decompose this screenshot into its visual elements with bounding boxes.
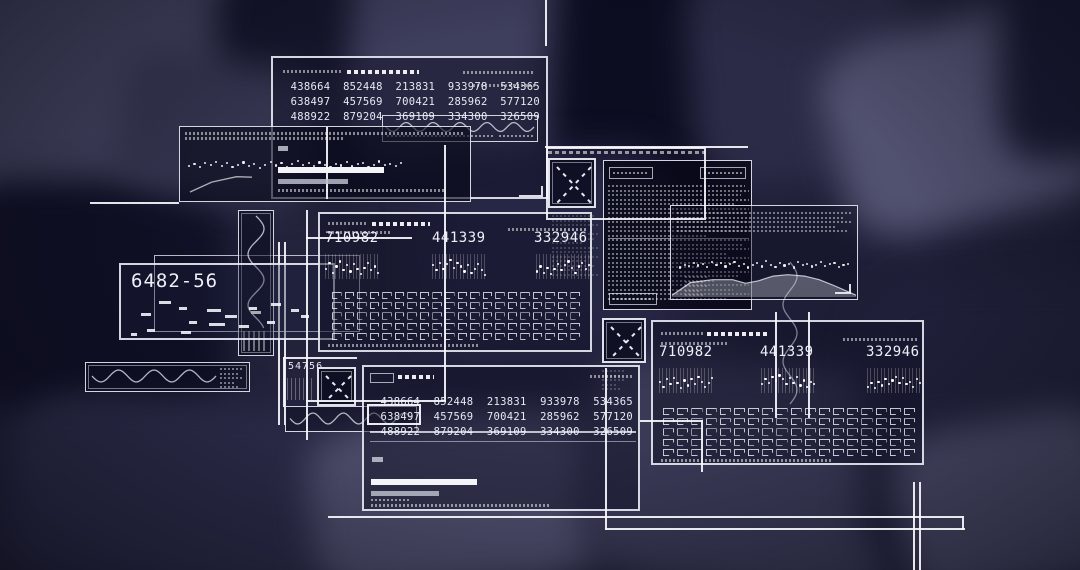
cell-glyph: [677, 408, 688, 415]
sine-wave: [92, 367, 216, 385]
code-dash: [179, 307, 187, 310]
number-cell: 369109: [476, 425, 529, 440]
metric-value: 332946: [866, 344, 920, 360]
x-marker-box: [602, 318, 646, 363]
cell-glyph: [520, 302, 530, 309]
cell-glyph: [370, 292, 380, 299]
number-cell: 213831: [476, 395, 529, 410]
cell-glyph: [847, 418, 858, 425]
x-dashed-icon: [604, 320, 648, 365]
cell-glyph: [495, 302, 505, 309]
cell-glyph: [720, 439, 731, 446]
overlay-line: [605, 528, 965, 530]
cell-glyph: [357, 292, 367, 299]
overlay-line: [913, 482, 915, 570]
cell-glyph: [458, 323, 468, 330]
cell-glyph: [805, 449, 816, 456]
number-cell: 457569: [333, 95, 385, 110]
cell-glyph: [663, 408, 674, 415]
progress-bar-white: [278, 167, 384, 173]
code-dash: [189, 321, 197, 324]
cell-glyph: [420, 312, 430, 319]
cell-glyph: [395, 323, 405, 330]
cell-glyph: [776, 408, 787, 415]
cell-glyph: [332, 302, 342, 309]
trend-line: [190, 173, 254, 193]
cell-glyph: [904, 449, 915, 456]
cell-glyph: [904, 408, 915, 415]
cell-glyph: [345, 312, 355, 319]
cell-glyph: [533, 302, 543, 309]
progress-bar-white: [371, 479, 477, 485]
cell-glyph: [833, 428, 844, 435]
cell-glyph: [833, 408, 844, 415]
cell-glyph: [332, 292, 342, 299]
cell-glyph: [483, 323, 493, 330]
cell-glyph: [407, 302, 417, 309]
cell-glyph: [720, 418, 731, 425]
header-noise: [185, 132, 463, 135]
header-dashes: [347, 70, 419, 74]
cell-glyph: [706, 428, 717, 435]
cell-glyph: [458, 312, 468, 319]
cell-glyph: [570, 302, 580, 309]
cell-glyph: [861, 439, 872, 446]
cell-glyph: [545, 333, 555, 340]
cell-glyph: [791, 439, 802, 446]
number-cell: 213831: [386, 80, 438, 95]
number-cell: 933978: [530, 395, 583, 410]
overlay-line: [605, 368, 607, 530]
cell-glyph: [570, 333, 580, 340]
overlay-line: [283, 357, 285, 407]
cell-glyph: [861, 428, 872, 435]
cell-glyph: [470, 312, 480, 319]
cell-glyph: [345, 292, 355, 299]
code-dash: [267, 321, 275, 324]
cell-glyph: [833, 418, 844, 425]
cell-glyph: [558, 312, 568, 319]
header-dashes: [398, 375, 434, 379]
metric-value: 710982: [659, 344, 713, 360]
cell-glyph: [458, 302, 468, 309]
cell-glyph: [483, 333, 493, 340]
cell-glyph: [458, 292, 468, 299]
cell-glyph: [748, 418, 759, 425]
header-dashes: [372, 222, 430, 226]
cell-glyph: [805, 418, 816, 425]
cell-glyph: [545, 323, 555, 330]
number-cell: 534365: [583, 395, 636, 410]
cell-glyph: [720, 449, 731, 456]
cell-glyph: [691, 408, 702, 415]
cell-glyph: [890, 408, 901, 415]
cell-glyph: [470, 292, 480, 299]
hud-overlay-scene: 4386648524482138319339785343656384974575…: [0, 0, 1080, 570]
cell-glyph: [558, 292, 568, 299]
code-dash: [141, 313, 151, 316]
code-dash: [131, 333, 137, 336]
cell-glyph: [706, 439, 717, 446]
cell-glyph: [407, 312, 417, 319]
cell-glyph: [847, 428, 858, 435]
cell-glyph: [432, 333, 442, 340]
cell-glyph: [445, 302, 455, 309]
header-noise: [590, 375, 634, 378]
cell-glyph: [819, 408, 830, 415]
cell-glyph: [776, 449, 787, 456]
cell-glyph: [876, 418, 887, 425]
cell-glyph: [445, 323, 455, 330]
dot-strip-chart: [659, 368, 711, 393]
code-dash: [207, 309, 221, 312]
header-dashes: [707, 332, 767, 336]
tag-noise: [704, 172, 742, 174]
cell-glyph: [776, 428, 787, 435]
section-divider: [370, 441, 636, 442]
cell-glyph: [847, 449, 858, 456]
cell-glyph: [805, 408, 816, 415]
cell-glyph: [791, 449, 802, 456]
cell-glyph: [570, 292, 580, 299]
overlay-line: [545, 146, 748, 148]
cell-glyph: [791, 428, 802, 435]
scatter-panel: [179, 126, 471, 202]
cell-glyph: [734, 418, 745, 425]
cell-glyph: [508, 302, 518, 309]
overlay-line: [90, 202, 179, 204]
cell-glyph: [357, 333, 367, 340]
header-tag: [370, 373, 394, 383]
cell-glyph: [663, 449, 674, 456]
number-cell: 700421: [476, 410, 529, 425]
cell-glyph: [432, 302, 442, 309]
cell-glyph: [495, 333, 505, 340]
code-dash: [209, 323, 225, 326]
mini-bars: [287, 378, 313, 400]
overlay-line: [962, 516, 964, 530]
cell-glyph: [332, 312, 342, 319]
cell-glyph: [819, 439, 830, 446]
code-dash: [249, 307, 257, 310]
cell-glyph: [395, 312, 405, 319]
cell-glyph: [677, 449, 688, 456]
cell-glyph: [720, 428, 731, 435]
number-cell: 334300: [530, 425, 583, 440]
cell-glyph: [445, 333, 455, 340]
cell-glyph: [508, 323, 518, 330]
cell-glyph: [734, 408, 745, 415]
number-cell: 933978: [438, 80, 490, 95]
cell-glyph: [345, 323, 355, 330]
cell-glyph: [762, 439, 773, 446]
overlay-line: [328, 516, 963, 518]
overlay-line: [306, 400, 446, 402]
cell-glyph: [357, 323, 367, 330]
cell-glyph: [876, 428, 887, 435]
cell-glyph: [545, 312, 555, 319]
cell-glyph: [332, 323, 342, 330]
waveform-panel: [85, 362, 250, 392]
cell-glyph: [370, 302, 380, 309]
cell-glyph: [370, 333, 380, 340]
dot-strip-chart: [325, 254, 377, 279]
footer-tag: [609, 293, 657, 305]
cell-glyph: [370, 312, 380, 319]
cell-glyph: [382, 333, 392, 340]
cell-glyph: [861, 408, 872, 415]
footer-noise: [661, 459, 831, 462]
cell-glyph: [382, 312, 392, 319]
cell-glyph: [533, 292, 543, 299]
cell-glyph: [748, 428, 759, 435]
number-cell: 577120: [491, 95, 543, 110]
number-cell: 488922: [370, 425, 423, 440]
code-dash: [271, 303, 281, 306]
header-noise: [843, 338, 917, 341]
cell-glyph: [420, 323, 430, 330]
cell-glyph: [776, 418, 787, 425]
dot-strip-chart: [867, 368, 919, 393]
dot-strip-chart: [432, 254, 484, 279]
number-cell: 577120: [583, 410, 636, 425]
number-cell: 285962: [438, 95, 490, 110]
cell-glyph: [762, 449, 773, 456]
cell-glyph: [357, 302, 367, 309]
footer-noise: [371, 504, 551, 507]
cell-glyph: [833, 449, 844, 456]
footer-noise: [328, 344, 478, 347]
cell-glyph: [407, 292, 417, 299]
cell-glyph: [791, 408, 802, 415]
number-cell: 534365: [491, 80, 543, 95]
header-noise: [328, 222, 368, 225]
cell-glyph: [495, 292, 505, 299]
cell-glyph: [458, 333, 468, 340]
cell-glyph: [357, 312, 367, 319]
cell-glyph: [847, 439, 858, 446]
overlay-line: [919, 482, 921, 570]
code-dash: [147, 329, 155, 332]
number-cell: 879204: [423, 425, 476, 440]
cell-glyph: [558, 302, 568, 309]
cell-glyph: [470, 302, 480, 309]
cell-glyph: [734, 428, 745, 435]
stray-text-noise: [552, 215, 600, 278]
cell-glyph: [861, 449, 872, 456]
overlay-line: [701, 420, 703, 472]
number-cell: 700421: [386, 95, 438, 110]
code-panel: 6482-56: [119, 263, 335, 340]
cell-glyph: [445, 292, 455, 299]
cell-glyph: [332, 333, 342, 340]
cell-glyph: [890, 418, 901, 425]
cell-glyph: [748, 408, 759, 415]
cell-glyph: [805, 439, 816, 446]
number-cell: 438664: [281, 80, 333, 95]
cell-glyph: [420, 302, 430, 309]
progress-bar-gray: [278, 179, 348, 184]
overlay-line: [283, 357, 357, 359]
cell-glyph: [706, 449, 717, 456]
cell-glyph: [345, 333, 355, 340]
code-dash: [239, 325, 249, 328]
cell-glyph: [734, 439, 745, 446]
cell-glyph: [570, 323, 580, 330]
cell-glyph: [520, 323, 530, 330]
cell-glyph: [382, 323, 392, 330]
overlay-line: [640, 420, 702, 422]
cell-glyph: [762, 418, 773, 425]
cell-glyph: [890, 449, 901, 456]
cell-glyph: [420, 333, 430, 340]
cell-glyph: [382, 302, 392, 309]
cell-glyph: [876, 408, 887, 415]
cell-glyph: [847, 408, 858, 415]
vertical-sine-wave: [780, 262, 800, 404]
number-cell: 326509: [583, 425, 636, 440]
cell-glyph: [677, 428, 688, 435]
number-cell: 852448: [423, 395, 476, 410]
overlay-frame: [546, 147, 706, 220]
cell-glyph: [545, 302, 555, 309]
cell-glyph: [520, 312, 530, 319]
cell-glyph: [904, 418, 915, 425]
glyph-grid: [332, 292, 580, 340]
cell-glyph: [819, 418, 830, 425]
footer-noise: [278, 189, 446, 192]
header-noise: [283, 70, 341, 73]
strike-line: [370, 431, 636, 433]
metric-value: 441339: [432, 230, 486, 246]
cell-glyph: [904, 439, 915, 446]
cell-glyph: [558, 323, 568, 330]
cell-glyph: [720, 408, 731, 415]
cell-glyph: [748, 439, 759, 446]
cell-glyph: [819, 428, 830, 435]
cell-glyph: [395, 292, 405, 299]
code-dash: [159, 301, 171, 304]
cell-glyph: [483, 312, 493, 319]
tick-strip: [499, 135, 533, 137]
cell-glyph: [570, 312, 580, 319]
cell-glyph: [762, 408, 773, 415]
cell-glyph: [470, 333, 480, 340]
header-noise: [661, 332, 703, 335]
cell-glyph: [508, 292, 518, 299]
cell-glyph: [734, 449, 745, 456]
overlay-line: [444, 145, 446, 401]
cell-glyph: [508, 333, 518, 340]
cell-glyph: [890, 439, 901, 446]
cell-glyph: [833, 439, 844, 446]
cell-glyph: [545, 292, 555, 299]
overlay-line: [808, 312, 810, 418]
code-value: 6482-56: [131, 270, 218, 292]
corner-bracket: [835, 284, 851, 294]
cell-glyph: [558, 333, 568, 340]
cell-glyph: [890, 428, 901, 435]
overlay-line: [545, 0, 547, 46]
cell-glyph: [861, 418, 872, 425]
cell-glyph: [508, 312, 518, 319]
chart-inner-noise: [685, 276, 745, 299]
cell-glyph: [533, 333, 543, 340]
cell-glyph: [395, 302, 405, 309]
cell-glyph: [382, 292, 392, 299]
tag-noise: [613, 298, 653, 300]
cell-glyph: [533, 312, 543, 319]
code-dash: [225, 315, 237, 318]
overlay-line: [775, 312, 777, 418]
code-dash: [291, 309, 299, 312]
cell-glyph: [445, 312, 455, 319]
cell-glyph: [706, 418, 717, 425]
number-cell: 488922: [281, 110, 333, 125]
cell-glyph: [520, 292, 530, 299]
cell-glyph: [876, 439, 887, 446]
cell-glyph: [876, 449, 887, 456]
code-dash: [181, 331, 191, 334]
side-text-noise: [220, 368, 244, 391]
selected-number-frame: [367, 404, 421, 425]
overlay-line: [306, 210, 308, 440]
metrics-panel-mid: 710982 441339 332946: [318, 212, 592, 352]
cell-glyph: [432, 323, 442, 330]
cell-glyph: [762, 428, 773, 435]
cell-glyph: [407, 333, 417, 340]
header-noise: [185, 137, 345, 140]
cell-glyph: [791, 418, 802, 425]
header-noise: [463, 71, 535, 74]
badge: [372, 457, 383, 462]
cell-glyph: [407, 323, 417, 330]
badge: [278, 146, 288, 151]
cell-glyph: [470, 323, 480, 330]
cell-glyph: [420, 292, 430, 299]
cell-glyph: [776, 439, 787, 446]
cell-glyph: [395, 333, 405, 340]
number-cell: 852448: [333, 80, 385, 95]
cell-glyph: [819, 449, 830, 456]
number-cell: 879204: [333, 110, 385, 125]
cell-glyph: [432, 312, 442, 319]
number-cell: 457569: [423, 410, 476, 425]
cell-glyph: [805, 428, 816, 435]
number-cell: 638497: [281, 95, 333, 110]
cell-glyph: [533, 323, 543, 330]
cell-glyph: [520, 333, 530, 340]
overlay-line: [306, 237, 412, 239]
cell-glyph: [495, 323, 505, 330]
number-cell: 285962: [530, 410, 583, 425]
x-dashed-icon: [319, 369, 358, 408]
cell-glyph: [495, 312, 505, 319]
cell-glyph: [677, 439, 688, 446]
header-tag: [700, 167, 746, 179]
cell-glyph: [706, 408, 717, 415]
bottom-numbers-panel: 4386648524482138319339785343656384974575…: [362, 365, 640, 511]
cell-glyph: [904, 428, 915, 435]
cell-glyph: [663, 439, 674, 446]
cell-glyph: [483, 292, 493, 299]
progress-bar-gray: [371, 491, 439, 496]
footer-noise: [371, 499, 411, 501]
cell-glyph: [345, 302, 355, 309]
cell-glyph: [370, 323, 380, 330]
cell-glyph: [748, 449, 759, 456]
corner-bracket: [519, 186, 543, 197]
